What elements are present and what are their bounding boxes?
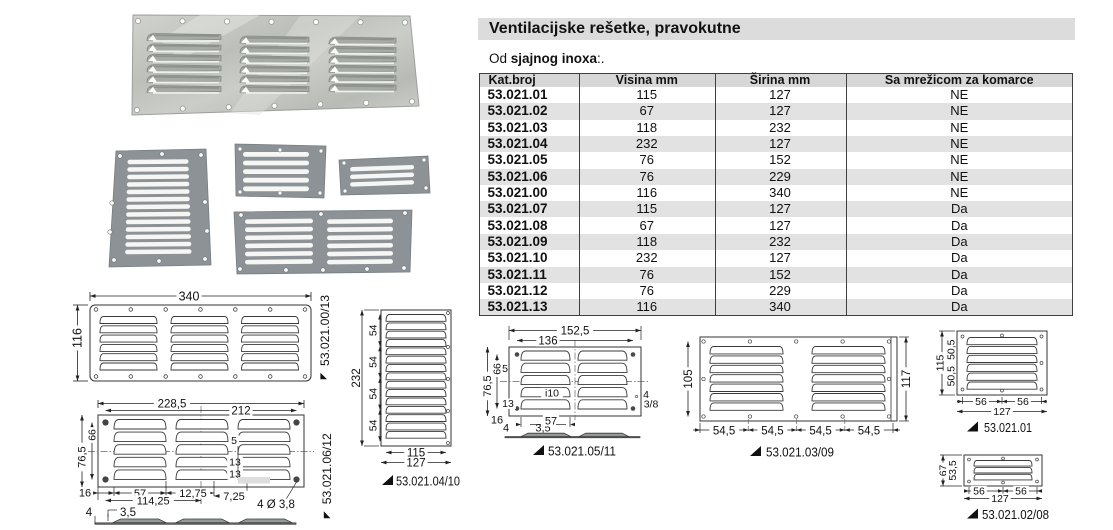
svg-text:53.021.01: 53.021.01 (984, 421, 1032, 435)
svg-text:136: 136 (538, 336, 557, 348)
svg-text:212: 212 (231, 406, 250, 418)
svg-text:105: 105 (683, 369, 695, 388)
svg-text:3/8: 3/8 (644, 399, 659, 411)
svg-text:16: 16 (491, 415, 503, 427)
svg-text:152,5: 152,5 (561, 326, 590, 338)
svg-text:66: 66 (86, 429, 98, 441)
svg-text:54: 54 (367, 356, 379, 368)
svg-text:4 Ø 3,8: 4 Ø 3,8 (257, 499, 295, 511)
svg-text:232: 232 (351, 368, 363, 387)
svg-text:56: 56 (973, 486, 985, 498)
svg-text:54: 54 (368, 388, 380, 400)
svg-text:127: 127 (991, 493, 1009, 505)
svg-text:228,5: 228,5 (158, 399, 187, 411)
svg-text:50,5: 50,5 (946, 339, 958, 360)
svg-text:4: 4 (86, 507, 93, 519)
svg-text:5: 5 (502, 363, 508, 375)
svg-text:116: 116 (71, 328, 85, 348)
svg-text:54,5: 54,5 (713, 426, 735, 438)
svg-text:53.021.05/11: 53.021.05/11 (548, 445, 616, 459)
svg-text:4: 4 (503, 423, 509, 435)
svg-text:53.021.03/09: 53.021.03/09 (766, 446, 834, 460)
svg-text:56: 56 (975, 396, 987, 408)
svg-text:54: 54 (368, 419, 380, 431)
svg-text:53.021.04/10: 53.021.04/10 (396, 475, 460, 489)
svg-text:53.021.00/13: 53.021.00/13 (318, 295, 332, 366)
svg-text:340: 340 (179, 289, 200, 303)
svg-text:16: 16 (79, 488, 91, 500)
svg-text:54: 54 (368, 324, 380, 336)
svg-text:13: 13 (229, 457, 241, 469)
svg-text:76,5: 76,5 (77, 446, 89, 467)
svg-text:76,5: 76,5 (482, 375, 494, 396)
svg-text:3,5: 3,5 (120, 507, 136, 519)
svg-text:5: 5 (231, 435, 237, 447)
svg-text:54,5: 54,5 (761, 426, 783, 438)
svg-text:50,5: 50,5 (945, 366, 957, 387)
svg-text:53.021.06/12: 53.021.06/12 (320, 433, 334, 504)
svg-text:127: 127 (406, 458, 425, 470)
svg-text:13: 13 (502, 398, 514, 410)
svg-text:53.021.02/08: 53.021.02/08 (982, 508, 1049, 522)
svg-text:12,75: 12,75 (179, 488, 207, 500)
svg-text:127: 127 (993, 406, 1011, 418)
svg-text:56: 56 (1015, 486, 1027, 498)
svg-text:i10: i10 (545, 388, 559, 400)
svg-text:114,25: 114,25 (137, 495, 170, 507)
svg-text:56: 56 (1017, 396, 1029, 408)
svg-text:54,5: 54,5 (809, 426, 831, 438)
svg-text:54,5: 54,5 (858, 426, 880, 438)
svg-text:7,25: 7,25 (223, 491, 244, 503)
svg-text:117: 117 (901, 370, 913, 388)
svg-text:53,5: 53,5 (947, 460, 959, 481)
svg-text:57: 57 (545, 416, 557, 428)
